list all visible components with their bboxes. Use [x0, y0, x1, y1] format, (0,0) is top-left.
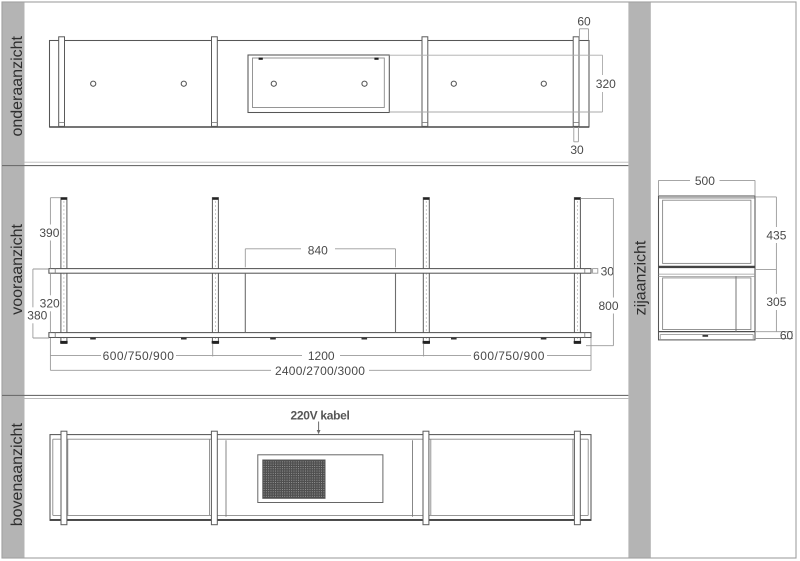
- svg-text:1200: 1200: [308, 349, 335, 363]
- svg-text:zijaanzicht: zijaanzicht: [632, 240, 649, 315]
- svg-text:500: 500: [695, 174, 715, 188]
- svg-text:600/750/900: 600/750/900: [103, 349, 175, 363]
- svg-text:30: 30: [601, 264, 615, 278]
- svg-text:60: 60: [780, 329, 794, 343]
- svg-text:840: 840: [308, 243, 328, 257]
- svg-text:320: 320: [596, 77, 616, 91]
- svg-text:390: 390: [39, 226, 59, 240]
- svg-text:2400/2700/3000: 2400/2700/3000: [275, 364, 365, 378]
- svg-text:600/750/900: 600/750/900: [473, 349, 545, 363]
- svg-text:60: 60: [577, 15, 591, 29]
- svg-text:305: 305: [766, 295, 786, 309]
- svg-text:30: 30: [570, 143, 584, 157]
- svg-text:220V kabel: 220V kabel: [290, 408, 349, 422]
- svg-text:onderaanzicht: onderaanzicht: [9, 35, 26, 136]
- svg-text:380: 380: [27, 309, 47, 323]
- svg-text:800: 800: [598, 299, 618, 313]
- svg-text:435: 435: [766, 228, 786, 242]
- svg-text:bovenaanzicht: bovenaanzicht: [9, 423, 26, 527]
- svg-text:vooraanzicht: vooraanzicht: [9, 223, 26, 314]
